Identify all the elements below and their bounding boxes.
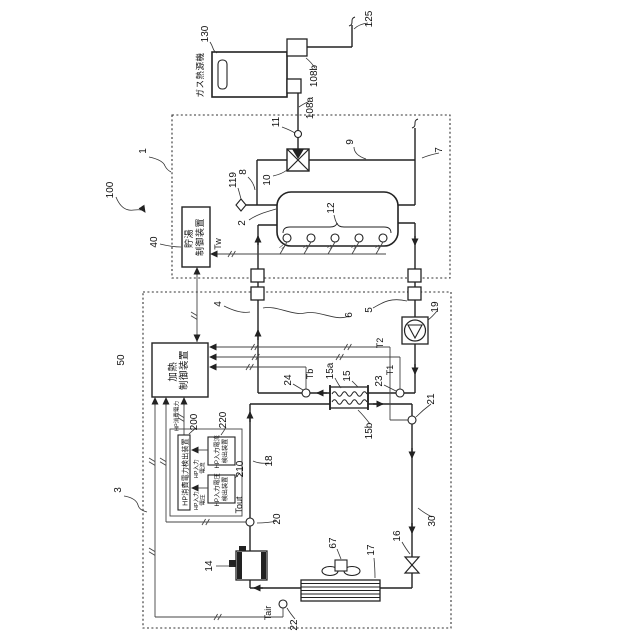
ref-4: 4 (213, 301, 224, 307)
label-tout: Tout (234, 496, 244, 514)
drain-valve-119 (236, 199, 246, 211)
gas-heater: ガス熱源機 (195, 39, 307, 98)
gas-port-108b (287, 39, 307, 56)
reference-labels: 100 1 3 2 7 8 9 10 11 119 12 40 50 130 1… (105, 10, 445, 630)
ref-200: 200 (189, 413, 200, 430)
sensor-20-tout (246, 518, 254, 526)
ref-108a: 108a (305, 96, 316, 119)
pipe-couplers (251, 269, 421, 300)
ref-2: 2 (237, 220, 248, 226)
gas-heater-name: ガス熱源機 (195, 52, 205, 97)
ref-125: 125 (364, 10, 375, 27)
label-tair: Tair (263, 606, 273, 621)
sensor-24-tb (302, 389, 310, 397)
ref-23: 23 (374, 375, 385, 387)
ref-3: 3 (113, 487, 124, 493)
ref-50: 50 (116, 354, 127, 366)
water-heat-exchanger (330, 385, 368, 410)
ref-18: 18 (264, 455, 275, 467)
sensor-23-t1 (396, 389, 404, 397)
air-heat-exchanger (301, 580, 380, 601)
label-t1: T1 (385, 365, 395, 376)
label-tb: Tb (305, 369, 315, 380)
ref-100: 100 (105, 181, 116, 198)
power-detection: HP消費電力検出装置 HP入力電流 検出装置 HP入力電圧 検出装置 HP入力 … (170, 401, 242, 516)
power-box-200-label: HP消費電力検出装置 (181, 438, 190, 506)
sensor-22-tair (279, 600, 287, 608)
tank-assembly (236, 131, 398, 247)
sig-power-label: HP消費電力 (173, 401, 181, 432)
ref-220: 220 (218, 411, 229, 428)
ref-130: 130 (200, 25, 211, 42)
ref-7: 7 (434, 147, 445, 153)
ref-11: 11 (271, 116, 282, 127)
ref-8: 8 (238, 169, 249, 175)
ref-15b: 15b (364, 422, 375, 439)
ref-210: 210 (235, 460, 246, 477)
ref-6: 6 (344, 312, 355, 318)
ref-14: 14 (204, 560, 215, 572)
ref-17: 17 (366, 544, 377, 556)
gas-heater-display (218, 60, 227, 89)
label-t2: T2 (375, 338, 385, 349)
storage-controller: 貯湯 制御装置 (182, 207, 210, 267)
leader-lines (116, 23, 439, 619)
ref-67: 67 (328, 537, 339, 549)
heating-controller: 加熱 制御装置 (152, 343, 208, 397)
ref-20: 20 (272, 513, 283, 525)
label-tw: Tw (213, 238, 223, 250)
ref-5: 5 (364, 307, 375, 313)
sensor-11 (295, 131, 302, 138)
circulation-pump (402, 317, 428, 344)
schematic-svg: ガス熱源機 貯湯 制御装置 加熱 制御装置 (0, 0, 640, 640)
sig-current-label: HP入力 電流 (192, 458, 207, 479)
ref-30: 30 (427, 515, 438, 527)
three-way-valve (287, 149, 309, 171)
ref-19: 19 (430, 301, 441, 313)
ref-119: 119 (228, 172, 239, 188)
ref-21: 21 (426, 393, 437, 405)
ref-108b: 108b (309, 64, 320, 87)
ref-15: 15 (342, 370, 353, 382)
ref-9: 9 (345, 139, 356, 145)
ref-22: 22 (289, 619, 300, 631)
ref-24: 24 (283, 374, 294, 386)
expansion-valve (405, 557, 419, 573)
sensor-21-t2 (408, 416, 416, 424)
ref-40: 40 (149, 236, 160, 248)
fan (322, 560, 360, 576)
patent-figure: ガス熱源機 貯湯 制御装置 加熱 制御装置 (0, 0, 640, 640)
ref-16: 16 (392, 530, 403, 542)
ref-1: 1 (138, 148, 149, 154)
ref-10: 10 (262, 174, 273, 186)
ref-15a: 15a (325, 362, 336, 379)
gas-port-108a (287, 79, 301, 93)
ref-12: 12 (326, 202, 337, 214)
compressor (229, 546, 267, 580)
sig-voltage-label: HP入力 電圧 (192, 490, 207, 511)
